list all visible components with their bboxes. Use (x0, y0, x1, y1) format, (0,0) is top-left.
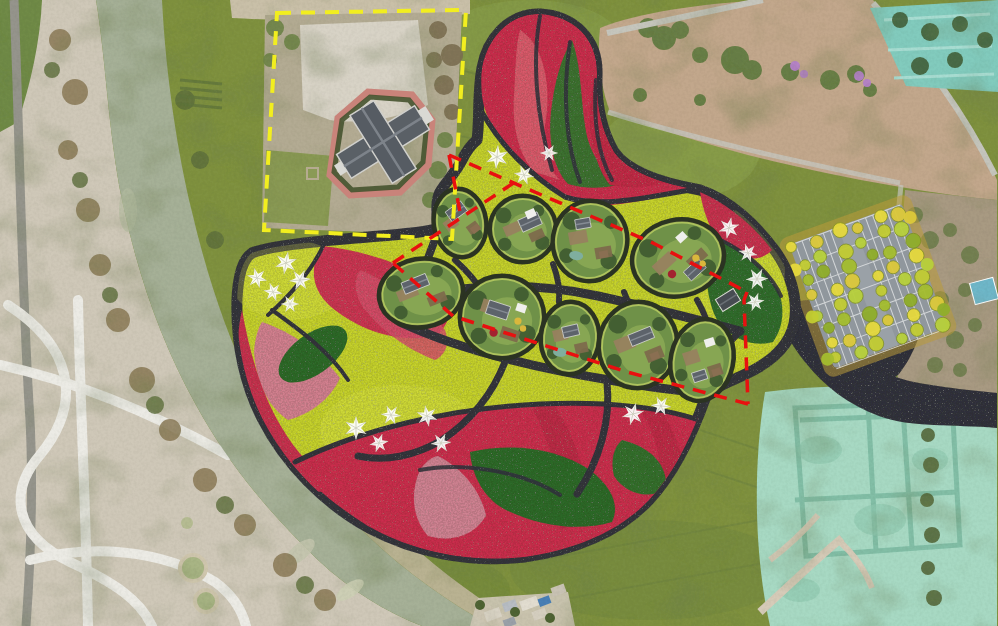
site-plan-canvas (0, 0, 998, 626)
purple-tree (790, 61, 800, 71)
purple-tree (854, 71, 864, 81)
shallow-water (119, 188, 137, 232)
purple-tree (800, 70, 808, 78)
pod-shrub (514, 287, 529, 302)
pod-shrub (496, 207, 512, 223)
purple-tree (863, 79, 871, 87)
pod-umbrella (520, 325, 526, 331)
round-planter (195, 590, 217, 612)
masterplan-screenshot (0, 0, 998, 626)
garden-pod (490, 196, 556, 262)
round-planter (181, 517, 193, 529)
pod-shrub (471, 328, 487, 344)
compound-lawn (264, 150, 334, 226)
garden-pod (460, 276, 544, 358)
pod-shrub (498, 238, 511, 251)
pod-building (575, 217, 592, 229)
cross-planter (307, 168, 318, 179)
pod-umbrella (514, 318, 521, 325)
round-planter (180, 555, 206, 581)
